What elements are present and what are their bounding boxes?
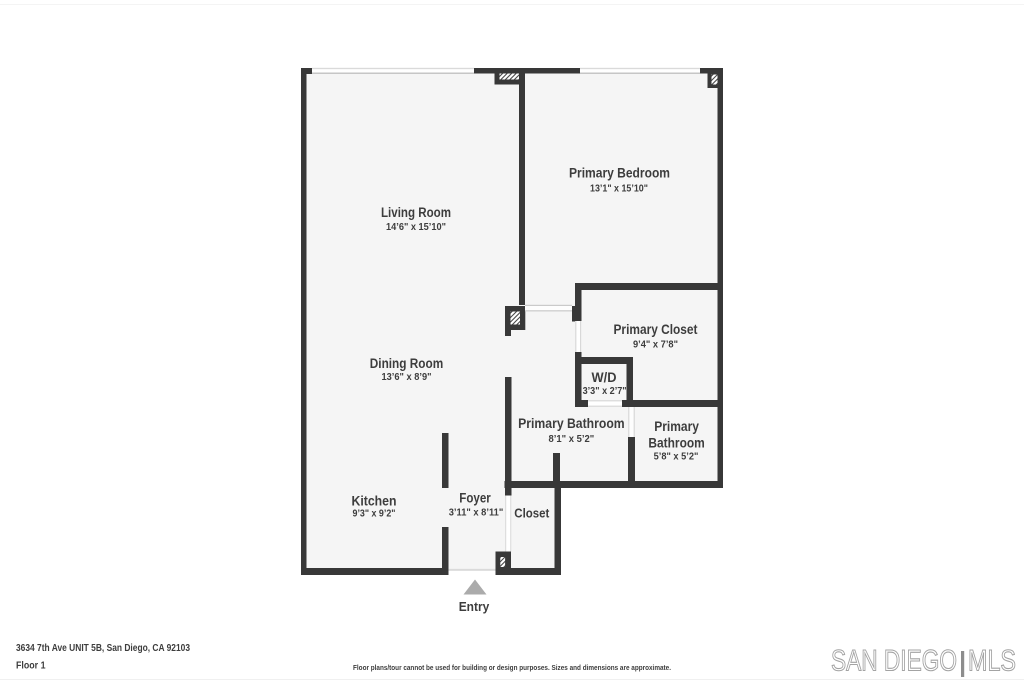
svg-text:13’6" x 8’9": 13’6" x 8’9" <box>382 372 432 383</box>
svg-text:3’11" x 8’11": 3’11" x 8’11" <box>449 508 504 519</box>
svg-text:Foyer: Foyer <box>459 491 491 506</box>
svg-text:Bathroom: Bathroom <box>648 435 704 450</box>
svg-text:8’1" x 5’2": 8’1" x 5’2" <box>549 434 595 445</box>
svg-text:Primary Closet: Primary Closet <box>614 322 698 337</box>
svg-text:5’8" x 5’2": 5’8" x 5’2" <box>654 451 699 462</box>
svg-text:Primary Bedroom: Primary Bedroom <box>569 166 670 181</box>
svg-text:Floor 1: Floor 1 <box>16 660 46 671</box>
svg-text:Living Room: Living Room <box>381 205 451 220</box>
svg-text:9’3" x 9’2": 9’3" x 9’2" <box>353 509 396 520</box>
svg-text:Closet: Closet <box>514 507 550 521</box>
svg-text:W/D: W/D <box>592 370 617 385</box>
svg-text:9’4" x 7’8": 9’4" x 7’8" <box>633 340 678 351</box>
svg-text:14’6" x 15’10": 14’6" x 15’10" <box>386 222 446 233</box>
svg-text:Primary Bathroom: Primary Bathroom <box>518 416 625 431</box>
svg-text:SAN DIEGO: SAN DIEGO <box>831 645 957 678</box>
svg-text:Primary: Primary <box>654 419 699 434</box>
svg-text:3634 7th Ave UNIT 5B, San Dieg: 3634 7th Ave UNIT 5B, San Diego, CA 9210… <box>16 643 190 654</box>
svg-text:3’3" x 2’7": 3’3" x 2’7" <box>583 386 627 397</box>
svg-text:Kitchen: Kitchen <box>352 494 397 509</box>
svg-text:MLS: MLS <box>968 645 1016 678</box>
svg-text:Entry: Entry <box>459 600 490 614</box>
svg-text:13’1" x 15’10": 13’1" x 15’10" <box>590 184 648 195</box>
svg-text:Floor plans/tour cannot be use: Floor plans/tour cannot be used for buil… <box>353 663 671 672</box>
svg-text:Dining Room: Dining Room <box>370 356 444 371</box>
